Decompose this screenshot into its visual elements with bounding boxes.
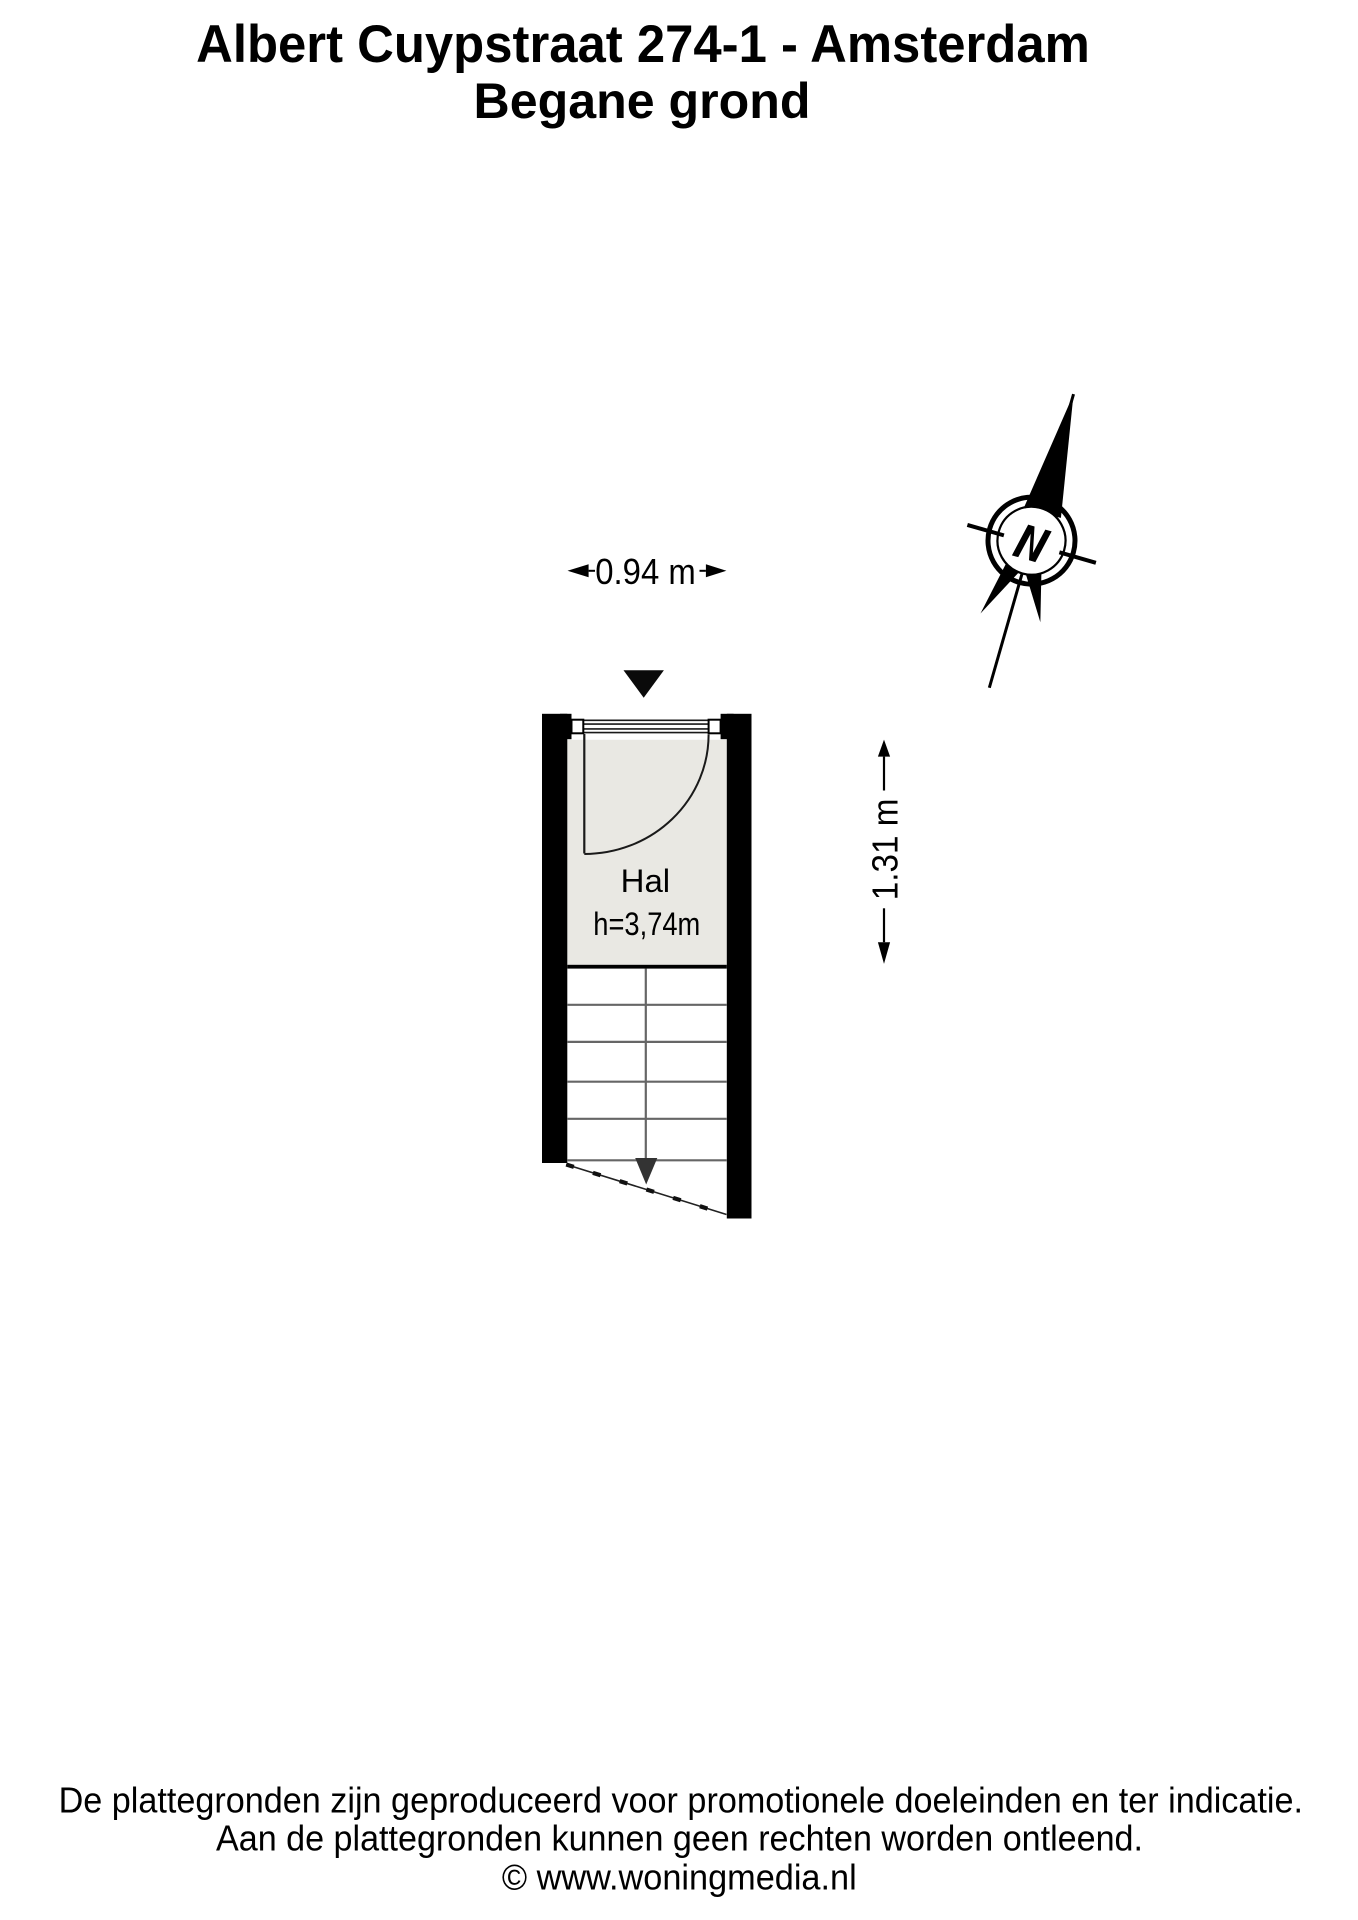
svg-text:© www.woningmedia.nl: © www.woningmedia.nl [502, 1857, 857, 1898]
svg-text:1.31 m: 1.31 m [865, 799, 906, 901]
svg-text:Aan de plattegronden kunnen ge: Aan de plattegronden kunnen geen rechten… [216, 1817, 1143, 1858]
svg-text:0.94 m: 0.94 m [595, 551, 696, 592]
svg-text:Begane grond: Begane grond [474, 73, 811, 129]
svg-text:De plattegronden zijn geproduc: De plattegronden zijn geproduceerd voor … [59, 1779, 1303, 1820]
svg-text:h=3,74m: h=3,74m [593, 906, 700, 942]
svg-text:Hal: Hal [621, 863, 671, 899]
svg-text:Albert Cuypstraat 274-1 - Amst: Albert Cuypstraat 274-1 - Amsterdam [196, 15, 1090, 74]
